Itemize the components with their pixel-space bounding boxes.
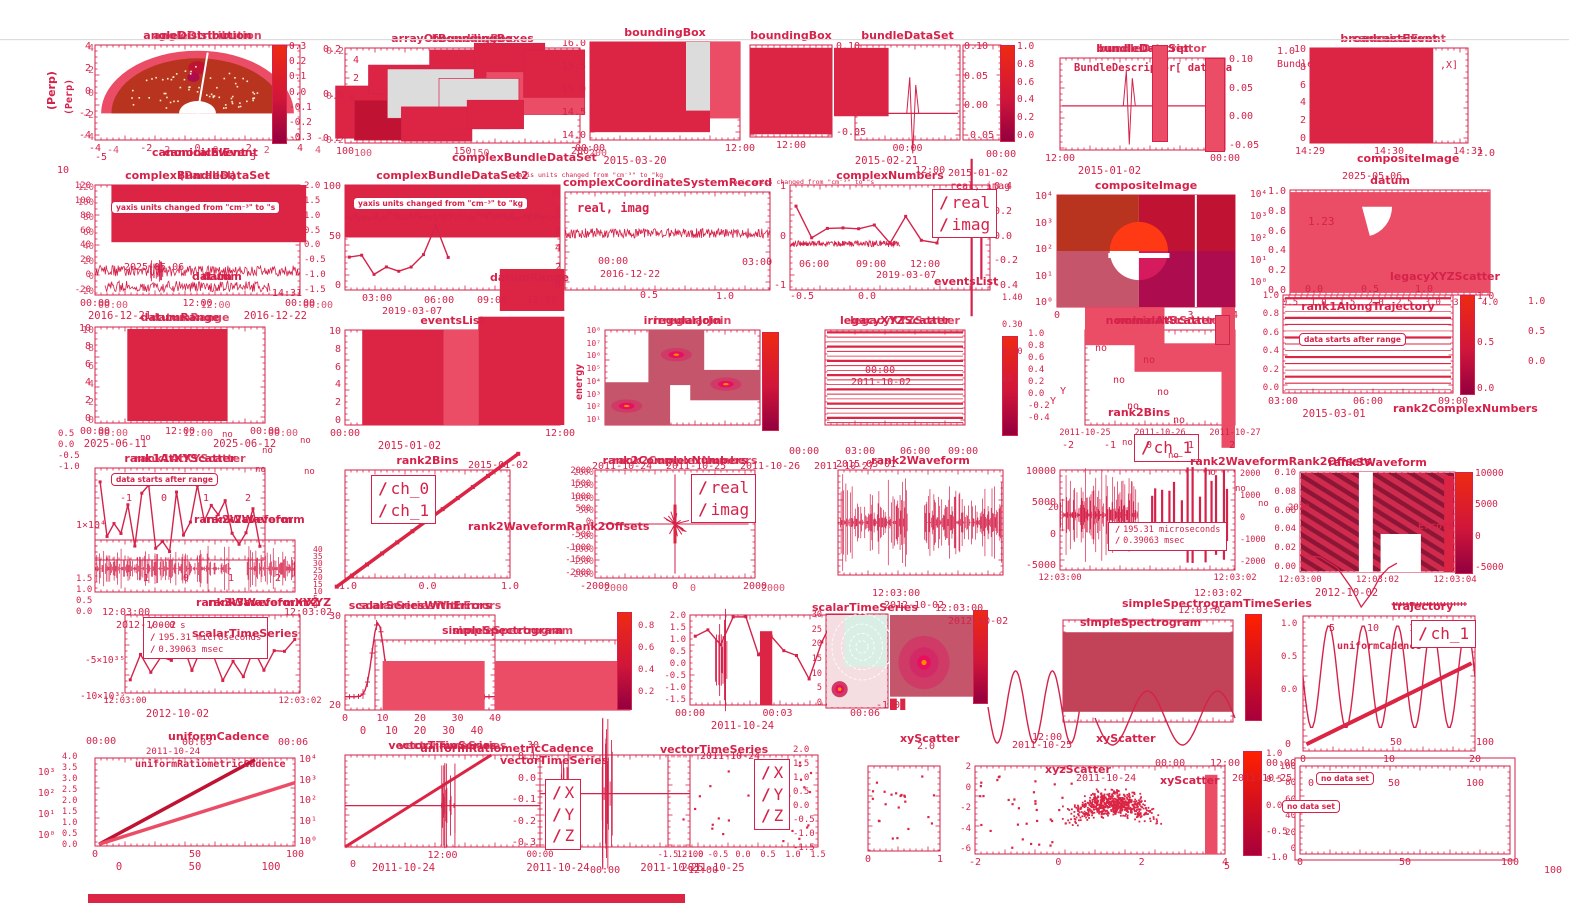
plot-title: rank2Bins [396,455,458,466]
legend-line-sample: ∕ [939,215,949,234]
x-tick: 10 [1383,755,1395,765]
plot-datumRange [95,327,265,423]
plot-title: compositeImage [1095,180,1197,191]
float-label: 10 [57,166,69,176]
y-tick: 5 [817,684,822,693]
inline-text: real, imag [577,202,649,214]
tick-column: 10⁴ [1250,190,1267,200]
plot-title: simpleSpectrogram [452,625,573,636]
inline-text: 1.0 [1415,285,1433,295]
y2-tick: 0.10 [1229,55,1253,65]
y-tick: -1000 [568,546,594,555]
y-tick: 0.0 [670,660,686,669]
y-tick: 0 [1300,134,1306,144]
colorbar-tick: 0.3 [289,42,306,52]
plot-title: (Parallel) [179,170,236,181]
float-label: datum [202,271,242,282]
colorbar-tick: 0.0 [289,88,306,98]
legend-item: ∕real [939,192,990,214]
annotation: data starts after range [1299,333,1406,346]
colorbar [1152,45,1168,142]
plot-title: rank1AlongTrajectory [1301,301,1435,312]
colorbar-tick: 0.1 [289,72,306,82]
plot-title: rank1AtXYScatter [134,453,245,464]
legend: ∕ch_1 [1411,620,1476,648]
x-tick-date: 2025-06-11 [84,439,147,450]
float-label: 03:00 [845,447,875,457]
y-tick: 10⁰ [1035,298,1053,308]
float-label: 2.0 [1477,149,1495,159]
y-tick: 4 [335,380,341,390]
float-label: 12:03:00 [102,608,150,618]
x-tick-date: 2015-03-01 [1302,409,1365,420]
colorbar [1245,614,1262,721]
tick-column: -2000 [1240,558,1266,567]
x-tick-date: 50 [189,862,202,873]
float-label: 2011-10-26 [740,462,800,472]
inline-text: 2011-10-02 [851,378,911,388]
legend-item: ∕Z [761,805,783,827]
tick-column: 10³ [1250,212,1267,222]
float-label: 2011-10-24 [146,748,200,757]
x-tick: -4 [107,146,119,156]
float-label: 0 [1285,740,1291,750]
float-label: simpleSpectrogram [1080,617,1201,628]
y-tick: 0 [780,232,786,242]
tick-column: 0.5 [76,597,92,606]
x-tick: 12:03:02 [278,697,321,706]
x-tick: 0.0 [418,582,436,592]
annotation: yaxis units changed from "cm⁻³" to "s [111,201,280,214]
x-tick: -1.0 [333,582,357,592]
tick-column: 0.5 [58,430,74,439]
inline-text: 10 [1367,624,1379,634]
tick-column: 0 [313,602,318,610]
float-label: 20 [1048,504,1059,513]
inline-text: 0 [349,94,355,104]
tick-column: 1.0 [1528,297,1545,307]
plot-frame-a [963,45,1001,140]
y-tick: 0 [335,281,341,291]
legend-item: ∕Y [552,804,574,826]
tick-column: 3.5 [62,764,77,773]
tick-column: -0.5 [793,816,815,825]
float-label: no [1205,469,1216,478]
y-tick: -0.2 [320,136,344,146]
y2-tick: 10² [299,796,317,806]
y-tick: 0.5 [670,648,686,657]
x-tick-date: 0 [116,862,122,873]
y2-tick: 0.5 [304,227,320,236]
legend-line-sample: ∕ [1115,536,1120,546]
float-label: 0.5 [640,291,658,301]
y-tick: 10³ [1035,219,1053,229]
plot-gallery: angleDistributionangleDistribution442200… [0,0,1569,904]
float-label: vectorTimeSeries [500,755,608,766]
float-label: 2015-03-01 [836,460,896,470]
tick-column: 0.2 [638,688,654,697]
float-label: 2011-10-24 [700,752,760,762]
inline-text: Errors [1418,522,1454,532]
y-tick: 1500 [574,482,594,491]
tick-column: 0.5 [793,788,809,797]
float-label: 09:00 [477,296,507,306]
plot-gray-line [0,39,1569,41]
legend-line-sample: ∕ [378,479,388,498]
legend-item: ∕X [761,762,783,784]
float-label: -2 [1062,441,1074,451]
legend: ∕X∕Y∕Z [754,759,790,830]
x-tick: 12:03:02 [1213,574,1256,583]
y-tick: 0.2 [326,47,344,57]
tick-column: 2.0 [62,797,77,806]
plot-angleDistribution [95,45,300,140]
inline-text: -1 [137,574,149,584]
float-label: rank2ComplexNumbers [1393,403,1538,414]
y-tick: 10² [1035,245,1053,255]
float-label: 12:00 [688,866,718,876]
float-label: 50 [1388,779,1400,789]
x-tick: 12:00 [725,144,755,154]
y-tick: 0 [89,273,94,282]
x-tick: 0 [1300,755,1306,765]
y-tick: 0.6 [1268,227,1286,237]
plot-rank2WaveformRank2Offsets [1060,470,1235,570]
colorbar-tick: 1.0 [1017,42,1034,52]
float-label: no [1122,439,1133,448]
tick-column: 10² [1250,234,1267,244]
x-tick-date: 30 [442,726,455,737]
x-tick: 2011-10-27 [1209,429,1260,438]
inline-text: 0.0 [1305,285,1323,295]
x-tick: 4 [297,144,303,154]
y-tick: -1500 [568,558,594,567]
float-label: xyScatter [1096,733,1156,744]
y-tick: 80 [83,214,94,223]
x-tick: 40 [489,714,501,724]
float-label: no [1168,452,1179,461]
legend-item: ∕ch_1 [1418,623,1469,645]
y-tick: -6 [960,845,971,854]
legend-item: ∕Z [552,825,574,847]
float-label: 12:03:00 [872,589,920,599]
y2-tick: -0.2 [994,256,1018,266]
y-tick: 0.2 [1263,366,1279,375]
y-tick: 8 [88,344,94,354]
float-label: 30 [527,741,539,751]
plot-uniformRatiometricCadence [95,758,295,846]
float-label: 06:00 [799,260,829,270]
float-label: 12:03:00 [935,604,983,614]
colorbar-tick: -0.2 [289,118,312,128]
y-tick: 2 [335,398,341,408]
tick-column: 1.0 [793,774,809,783]
y-tick: -0.1 [512,795,536,805]
y-tick: 10000 [1026,467,1056,477]
float-label: 5 [250,153,256,163]
tick-column: 0.4 [1028,366,1044,375]
float-label: 12:00 [910,260,940,270]
y-tick: 0.4 [1268,246,1286,256]
float-label: 0 [1146,441,1152,451]
y-tick: 10² [587,403,601,411]
float-label: 2011-10-25 [666,462,726,472]
x-tick-date: 2012-10-02 [146,709,209,720]
y-tick: 10 [812,670,822,679]
tick-column: 1.0 [1281,620,1297,629]
inline-text: 2 [245,494,251,504]
float-label: trajectory [1392,601,1453,612]
y-tick: -1.0 [664,684,686,693]
float-label: xyzScatter [1045,764,1111,775]
y-tick: 0.2 [1268,266,1286,276]
colorbar-tick: -5000 [1475,563,1504,573]
tick-column: 0.6 [638,644,654,653]
plot-title: complexBundleDataSet2 [376,170,528,181]
float-label: 00:00 [986,150,1016,160]
tick-column: -0.5 [58,452,80,461]
y-tick: 0 [335,416,341,426]
x-tick-date: 100 [262,862,281,873]
plot-xyScatter-2 [868,766,940,851]
inline-text: 4 [353,56,359,66]
x-tick: 100 [336,147,354,157]
y-tick: -1.5 [664,696,686,705]
legend-line-sample: ∕ [1115,525,1120,535]
plot-title: legacyXYZScatter [850,315,960,326]
float-label: 00:00 [598,257,628,267]
float-label: 12:00 [915,166,945,176]
float-label: 2025-05-06 [124,263,184,273]
annotation: yaxis units changed from "cm⁻³" to "kg [353,197,528,210]
y-tick: -20 [78,288,94,297]
y2-tick: 0.00 [1229,112,1253,122]
x-tick: 20 [1469,755,1481,765]
float-label: -0.5 [790,292,814,302]
colorbar [1000,45,1015,142]
tick-column: 0.30 [1002,321,1022,330]
legend-item: ∕0.39063 msec [1115,536,1220,547]
colorbar-tick: 0.2 [289,57,306,67]
float-label: 00:00 [86,737,116,747]
inline-text: 00:00 [865,366,895,376]
float-label: 2011-10-24 [592,462,652,472]
y-tick: 10⁴ [587,378,601,386]
y2-tick: 10⁰ [299,837,317,847]
float-label: real, imag [950,182,1010,192]
float-label: 2016-12-22 [600,270,660,280]
colorbar [272,45,287,144]
float-label: -1 [1104,441,1116,451]
y-tick: 2 [1300,116,1306,126]
legend-item: ∕ch_1 [378,500,429,522]
inline-text: no [1143,356,1155,366]
y-tick: 10¹ [587,416,601,424]
float-label: no [222,431,233,440]
inline-text: no [1157,388,1169,398]
tick-column: -0.2 [1028,402,1050,411]
plot-boundingBox-2 [750,45,832,137]
y2-tick: 10³ [299,776,317,786]
legend-item: ∕0.39063 msec [150,644,261,656]
float-label: 2015-01-02 [948,169,1008,179]
y2-tick: -0.05 [1229,141,1259,151]
float-label: uniformRatiometricCadence [420,743,594,754]
legend-item: ∕Y [761,784,783,806]
y-tick: 1.0 [1263,292,1279,301]
y-tick: 10 [329,327,341,337]
x-tick: 2 [1139,858,1145,868]
y2-tick: 1.0 [304,212,320,221]
float-label: Bundle [1277,60,1313,70]
inline-text: -1 [120,494,132,504]
tick-column: 0.20 [1002,348,1022,357]
y-tick: -4 [960,825,971,834]
y-tick: 2 [88,398,94,408]
annotation: no data set [1316,772,1374,785]
legend-line-sample: ∕ [552,805,562,824]
x-tick: 0 [1055,858,1061,868]
plot-arrayOfBoundingBoxes [345,48,580,143]
x-tick-date: 0 [360,726,366,737]
float-label: 2019-03-07 [876,271,936,281]
legend-line-sample: ∕ [552,783,562,802]
y2-tick: 10⁴ [299,755,317,765]
x-tick: 100 [1501,858,1519,868]
float-label: 0 [1308,779,1314,789]
tick-column: 2000 [1240,470,1260,479]
float-label: 03:00 [362,294,392,304]
float-label: 12:03:02 [1178,606,1226,616]
tick-column: 1.0 [62,819,77,828]
x-tick: -2 [969,858,981,868]
float-label: 09:00 [948,447,978,457]
y-tick: 0 [88,89,94,99]
float-label: -5×10³⁵ [85,656,125,666]
y-tick: -0.3 [512,838,536,848]
tick-column: 0.5 [62,830,77,839]
plot-title: scalarSeriesWithErrors [359,600,502,611]
legend-item: ∕ch_0 [378,478,429,500]
x-tick: 100 [354,149,372,159]
tick-column: 4.0 [62,753,77,762]
y2-tick: 0.0 [304,241,320,250]
x-tick-date: 2015-01-02 [1078,166,1141,177]
float-label: no [255,466,266,475]
legend-line-sample: ∕ [698,500,708,519]
y-tick: 6 [555,226,561,236]
y-tick: 20 [83,258,94,267]
float-label: 0 [350,860,356,870]
legend: ∕195.31 microseconds∕0.39063 msec [1108,522,1227,551]
inline-text: 1 [228,574,234,584]
float-label: rank2Waveform [206,514,305,525]
float-label: 00:06 [278,738,308,748]
y-tick: 0 [966,784,971,793]
y-tick: -4 [82,133,94,143]
float-label: Y [1060,387,1066,397]
tick-column: 0.4 [638,666,654,675]
y-tick: 1000 [574,495,594,504]
plot-title: nominalAtScatter [1116,315,1225,326]
tick-column: 0.0 [76,608,92,617]
colorbar-tick: 0.0 [1477,384,1494,394]
y2-tick: 1.5 [304,197,320,206]
float-label: 1 [1188,441,1194,451]
x-tick-date: 2011-10-24 [372,863,435,874]
plot-bundleDataSet-1 [855,45,960,140]
float-label: scalarTimeSeries [192,628,298,639]
float-label: Y [1050,397,1056,407]
tick-column: 1.40 [1002,294,1022,303]
inline-text: 1.23 [1308,216,1335,227]
float-label: (Perp) [46,71,57,110]
y-tick: 8 [555,207,561,217]
x-tick: 12:03:00 [1038,574,1081,583]
float-label: 14:31 [272,289,302,299]
inline-text: no [1095,344,1107,354]
inline-text: 0 [183,574,189,584]
plot-title: datumRange [151,312,230,323]
x-tick: 100 [286,850,304,860]
y-tick: 2000 [574,469,594,478]
x-tick: 4 [315,146,321,156]
tick-column: 3.0 [62,775,77,784]
tick-column: 0.8 [1028,342,1044,351]
plot-bottom-strip [88,894,685,903]
float-label: -5 [95,153,107,163]
y-tick: 10⁷ [587,340,601,348]
x-tick: -1.5 [658,851,678,860]
colorbar [762,332,779,431]
float-label: no [300,437,311,446]
y-tick: -0.2 [512,817,536,827]
y-tick: 6 [1300,81,1306,91]
y2-tick: 10¹ [299,817,317,827]
legend-line-sample: ∕ [761,806,771,825]
x-tick: -1.0 [683,851,703,860]
tick-column: 1000 [1240,492,1260,501]
inline-text: uniformRatiometricCadence [135,760,286,770]
float-label: complexBundleDataSet [452,152,597,163]
y-tick: 8 [335,345,341,355]
float-label: 12:00 [1210,759,1240,769]
legend-item: ∕imag [698,499,749,521]
tick-column: 1.5 [76,575,92,584]
y-tick: 40 [1285,812,1296,821]
legend: ∕real∕imag [691,474,756,523]
tick-column: 0.0 [1028,390,1044,399]
y-tick: 0.6 [1263,329,1279,338]
legend-line-sample: ∕ [1418,624,1428,643]
x-tick: 0.5 [760,851,775,860]
float-label: 2012-10-02 [948,617,1008,627]
x-tick: 00:00 [892,144,922,154]
float-label: 00:00 [1155,759,1185,769]
y-tick: 10⁶ [587,352,601,360]
float-label: 06:00 [900,447,930,457]
y-tick: 15.5 [562,62,586,72]
y-tick: 20 [329,701,341,711]
x-tick: 50 [189,850,201,860]
float-label: 03:00 [742,258,772,268]
tick-column: -1.5 [793,844,815,853]
y-tick: 20 [812,640,822,649]
float-label: 2011-10-25 [1232,774,1292,784]
y-tick: 6 [335,363,341,373]
colorbar [617,612,632,710]
x-tick-date: 2011-10-24 [526,863,589,874]
